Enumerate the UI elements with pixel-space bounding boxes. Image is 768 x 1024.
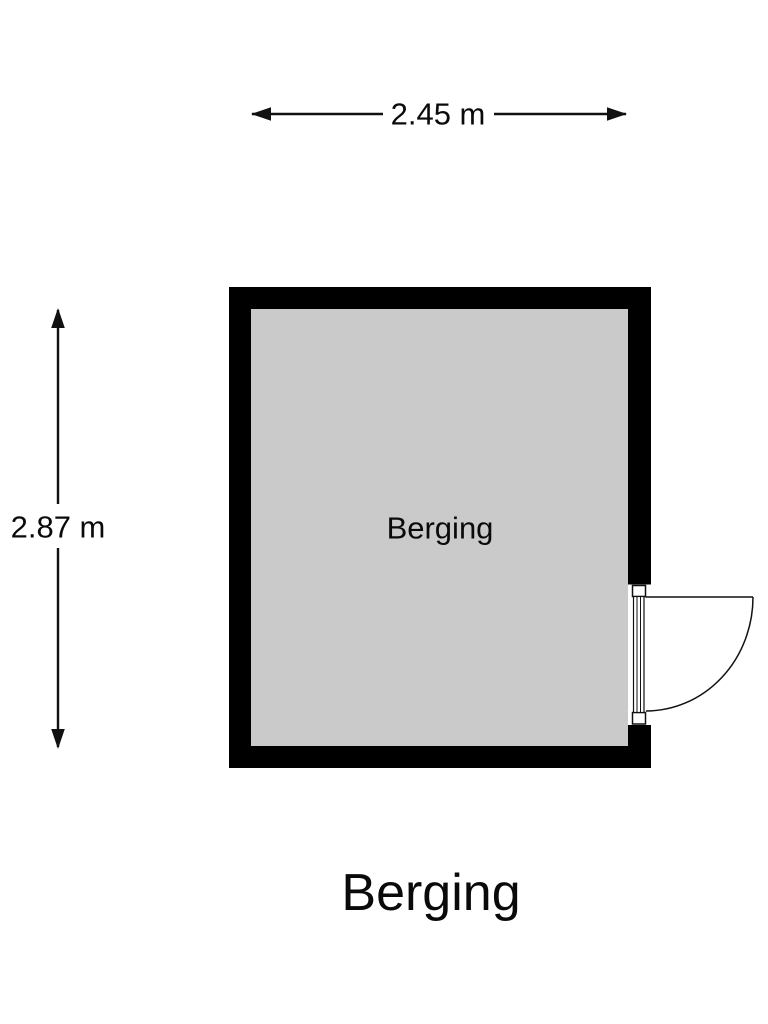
room-label: Berging [387, 513, 494, 544]
arrowhead-down-icon [51, 729, 65, 749]
plan-title: Berging [341, 867, 520, 919]
dimension-width-label: 2.45 m [391, 99, 486, 130]
arrowhead-up-icon [51, 308, 65, 328]
arrowhead-left-icon [251, 107, 271, 121]
dimension-height-label: 2.87 m [11, 512, 106, 543]
door-jamb-top [633, 586, 646, 597]
door-swing-arc [646, 597, 753, 711]
floorplan-canvas: 2.45 m 2.87 m Berging Berging [0, 0, 768, 1024]
door-leaf-closed [634, 597, 645, 713]
door-jamb-bottom [633, 713, 646, 725]
arrowhead-right-icon [607, 107, 627, 121]
